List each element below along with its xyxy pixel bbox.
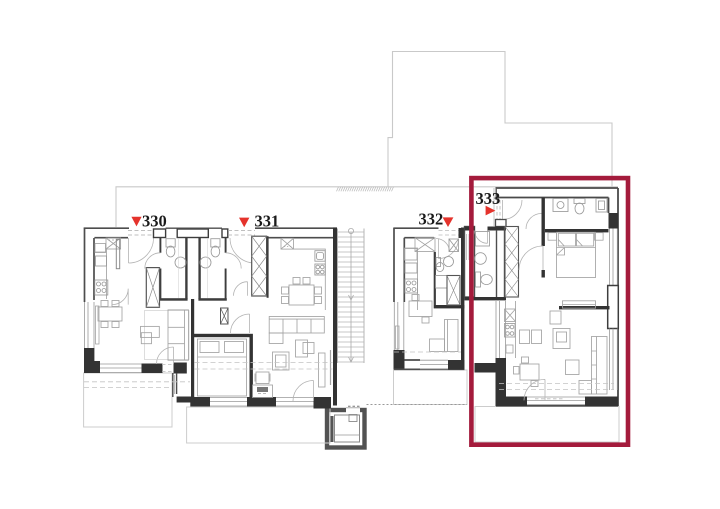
svg-text:332: 332 [419, 210, 444, 229]
svg-text:331: 331 [255, 212, 280, 231]
svg-text:330: 330 [142, 212, 167, 231]
svg-text:333: 333 [476, 189, 501, 208]
